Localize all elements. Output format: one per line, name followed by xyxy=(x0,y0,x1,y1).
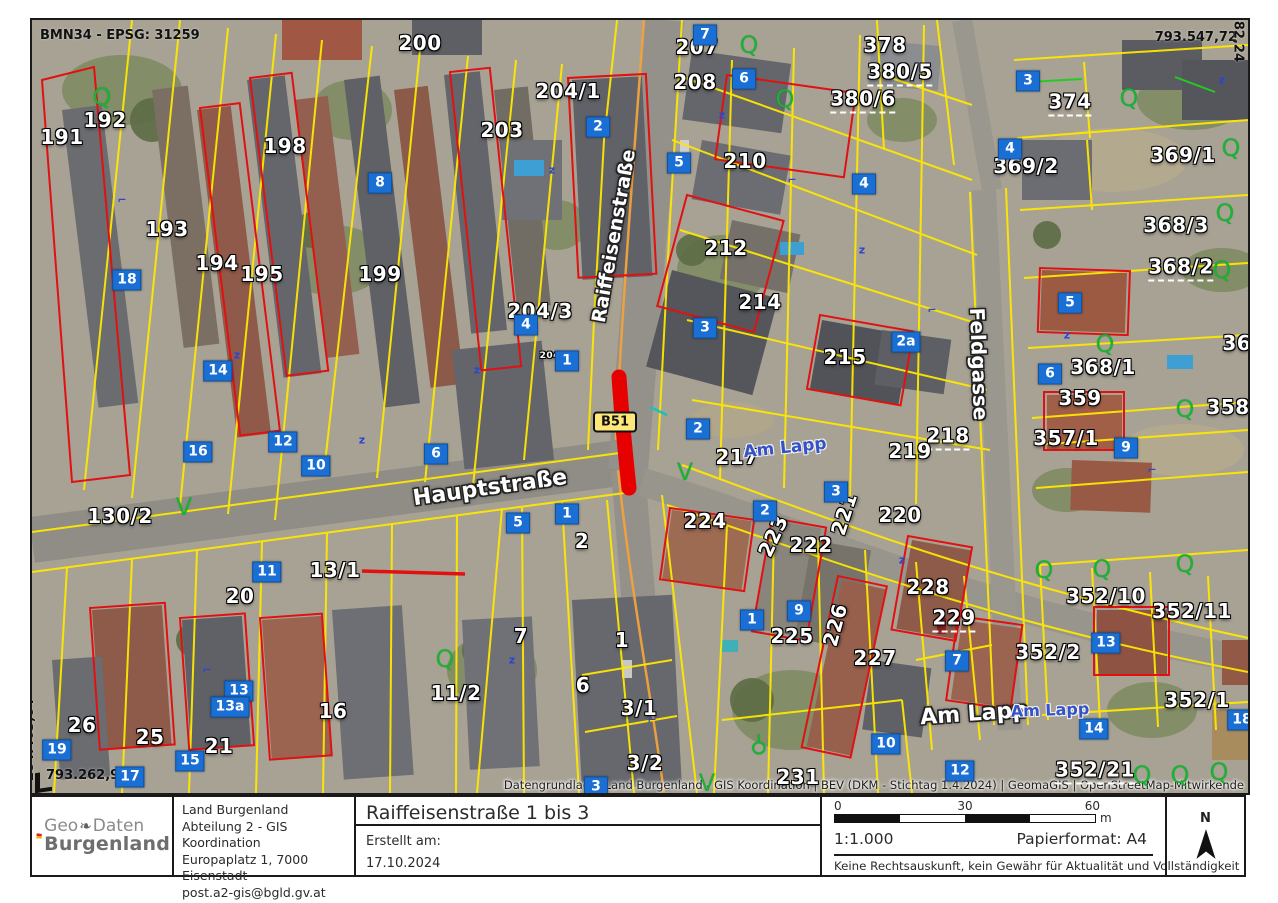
title-section: Raiffeisenstraße 1 bis 3 Erstellt am: 17… xyxy=(354,797,820,875)
created-block: Erstellt am: 17.10.2024 xyxy=(356,826,820,875)
scale-bar-segments xyxy=(834,814,1096,823)
scale-info-row: 1:1.000 Papierformat: A4 xyxy=(834,830,1153,848)
highlight-segment xyxy=(619,377,629,488)
scale-tick-30: 30 xyxy=(957,799,972,813)
org-line-4: post.a2-gis@bgld.gv.at xyxy=(182,885,346,902)
cadastre-lines-layer xyxy=(32,20,1248,793)
map-title: Raiffeisenstraße 1 bis 3 xyxy=(356,797,820,826)
scale-unit: m xyxy=(1100,811,1112,825)
north-arrow-section: N xyxy=(1165,797,1244,875)
org-line-3: Europaplatz 1, 7000 Eisenstadt xyxy=(182,852,346,885)
scale-ratio: 1:1.000 xyxy=(834,830,893,848)
north-label: N xyxy=(1200,811,1211,826)
scale-section: 0 30 60 m 1:1.000 Papierformat: A4 Keine… xyxy=(820,797,1165,875)
scale-tick-60: 60 xyxy=(1085,799,1100,813)
org-line-1: Land Burgenland xyxy=(182,802,346,819)
scale-tick-0: 0 xyxy=(834,799,842,813)
logo-text: Geo❧Daten Burgenland xyxy=(44,818,170,855)
scale-bar-ticks: 0 30 60 xyxy=(834,799,1096,813)
leaf-icon: ❧ xyxy=(79,817,92,835)
created-date: 17.10.2024 xyxy=(366,853,810,875)
disclaimer: Keine Rechtsauskunft, kein Gewähr für Ak… xyxy=(834,854,1153,873)
organization-address: Land Burgenland Abteilung 2 - GIS Koordi… xyxy=(172,797,354,875)
logo-burgenland: Burgenland xyxy=(44,835,170,854)
footer-panel: Geo❧Daten Burgenland Land Burgenland Abt… xyxy=(30,795,1246,877)
scale-bar: m xyxy=(834,813,1153,823)
burgenland-flag-icon xyxy=(36,807,42,865)
map-export-page: BMN34 - EPSG: 31259 793.547,72 284.582,2… xyxy=(0,0,1278,903)
org-line-2: Abteilung 2 - GIS Koordination xyxy=(182,819,346,852)
north-arrow-icon xyxy=(1193,827,1219,861)
created-label: Erstellt am: xyxy=(366,831,810,853)
paper-format: Papierformat: A4 xyxy=(1016,830,1147,848)
logo-section: Geo❧Daten Burgenland xyxy=(32,797,172,875)
map-canvas: BMN34 - EPSG: 31259 793.547,72 284.582,2… xyxy=(30,18,1250,795)
